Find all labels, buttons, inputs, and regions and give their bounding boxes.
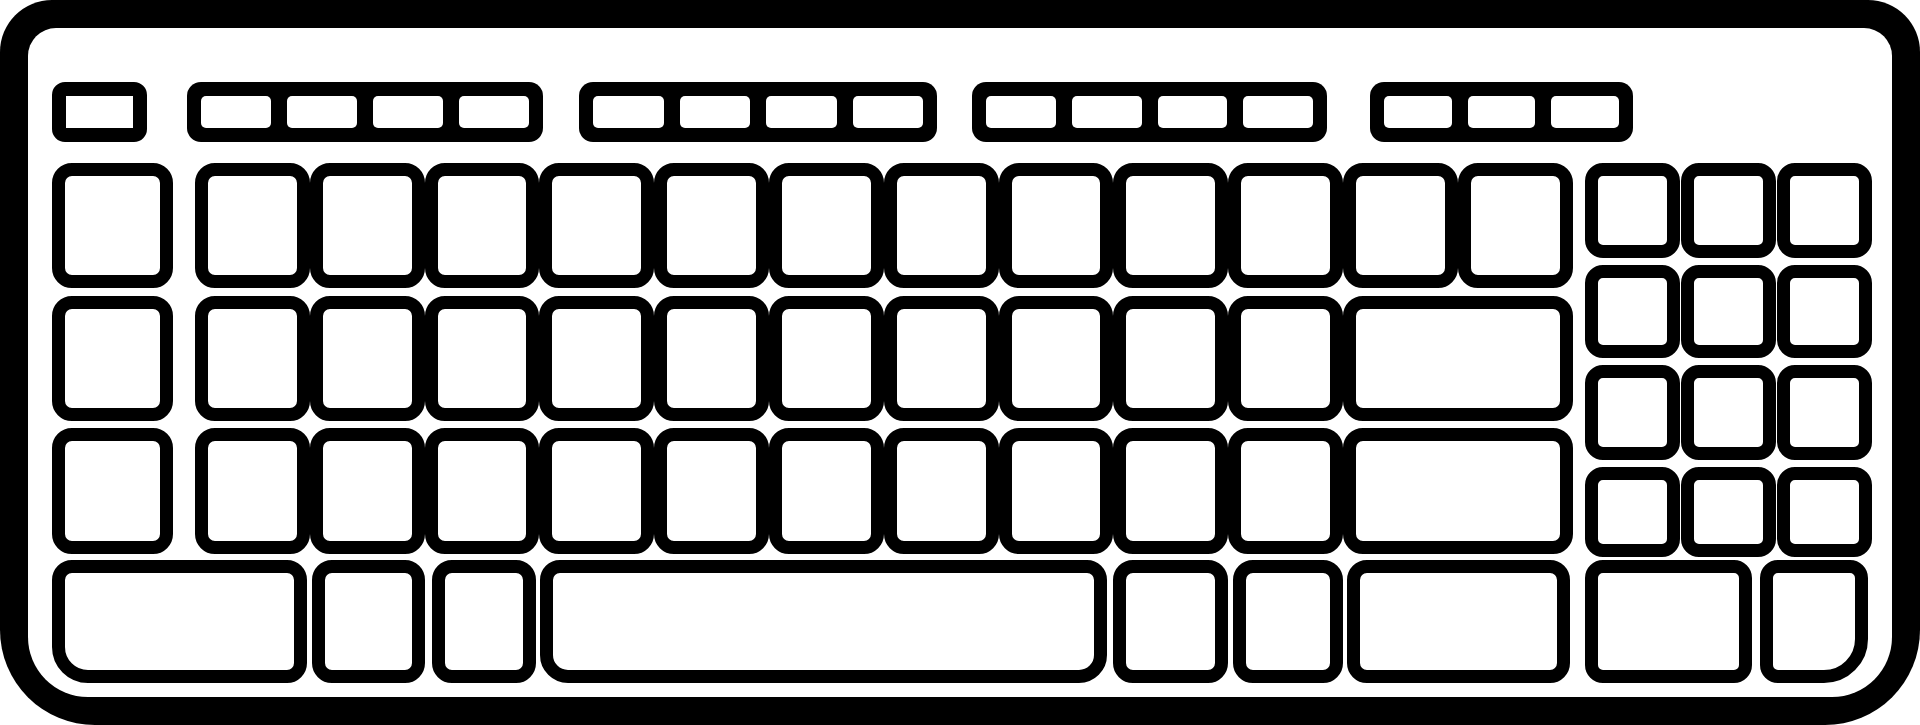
left-column-key	[52, 428, 173, 554]
key	[1228, 428, 1343, 554]
function-key-group-3	[972, 82, 1327, 142]
key	[1113, 296, 1228, 421]
key	[310, 428, 425, 554]
key	[539, 428, 654, 554]
key	[999, 163, 1113, 288]
key	[195, 428, 310, 554]
right-shift-key	[1343, 428, 1573, 554]
function-key-cell	[201, 96, 271, 128]
esc-key	[52, 82, 147, 142]
function-key-cell	[1551, 96, 1619, 128]
key	[1113, 428, 1228, 554]
function-key-cell	[459, 96, 529, 128]
numpad-key	[1777, 265, 1872, 358]
key	[310, 163, 425, 288]
function-key-group-1	[187, 82, 543, 142]
numpad-zero-key	[1585, 560, 1752, 683]
function-key-cell	[373, 96, 443, 128]
numpad-key	[1585, 265, 1680, 358]
numpad-key	[1777, 467, 1872, 557]
keyboard-icon	[0, 0, 1920, 725]
function-key-cell	[287, 96, 357, 128]
numpad-key	[1777, 365, 1872, 460]
key	[884, 296, 999, 421]
numpad-key	[1777, 163, 1872, 258]
function-key-cell	[593, 96, 664, 128]
modifier-key	[432, 560, 536, 683]
left-ctrl-key	[52, 560, 307, 683]
function-key-group-2	[579, 82, 937, 142]
function-key-cell	[1243, 96, 1313, 128]
key	[539, 296, 654, 421]
modifier-key	[1233, 560, 1343, 683]
key	[1343, 163, 1458, 288]
key	[195, 296, 310, 421]
function-key-cell	[1158, 96, 1228, 128]
function-key-cell	[853, 96, 924, 128]
modifier-key	[1113, 560, 1228, 683]
key	[1228, 163, 1343, 288]
key	[425, 163, 539, 288]
key	[884, 428, 999, 554]
function-key-cell	[680, 96, 751, 128]
enter-key	[1343, 296, 1573, 421]
key	[425, 296, 539, 421]
key	[425, 428, 539, 554]
key	[769, 296, 884, 421]
numpad-key	[1585, 163, 1680, 258]
function-key-cell	[1468, 96, 1536, 128]
numpad-key	[1681, 163, 1776, 258]
numpad-dot-key	[1760, 560, 1868, 683]
numpad-key	[1681, 265, 1776, 358]
key	[769, 163, 884, 288]
numpad-key	[1585, 467, 1680, 557]
key	[884, 163, 999, 288]
numpad-key	[1681, 467, 1776, 557]
function-key-group-4	[1370, 82, 1633, 142]
key	[1228, 296, 1343, 421]
key	[999, 296, 1113, 421]
numpad-key	[1585, 365, 1680, 460]
key	[195, 163, 310, 288]
key	[539, 163, 654, 288]
numpad-key	[1681, 365, 1776, 460]
function-key-cell	[766, 96, 837, 128]
key	[310, 296, 425, 421]
key	[654, 296, 769, 421]
function-key-cell	[1072, 96, 1142, 128]
right-ctrl-key	[1347, 560, 1570, 683]
key	[1113, 163, 1228, 288]
key	[654, 163, 769, 288]
function-key-cell	[1384, 96, 1452, 128]
left-column-key	[52, 296, 173, 421]
key	[999, 428, 1113, 554]
key	[769, 428, 884, 554]
modifier-key	[312, 560, 425, 683]
spacebar	[540, 560, 1107, 683]
key	[1458, 163, 1573, 288]
left-column-key	[52, 163, 173, 288]
function-key-cell	[986, 96, 1056, 128]
key	[654, 428, 769, 554]
